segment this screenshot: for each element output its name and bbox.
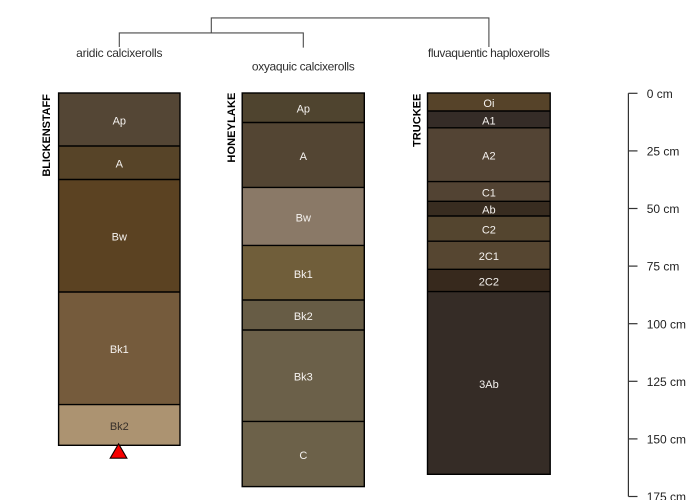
svg-text:Bk3: Bk3 xyxy=(294,372,313,384)
svg-text:C1: C1 xyxy=(482,187,496,199)
svg-text:Bk2: Bk2 xyxy=(294,311,313,323)
svg-text:Ab: Ab xyxy=(482,205,495,217)
svg-text:175 cm: 175 cm xyxy=(647,490,686,500)
svg-text:2C1: 2C1 xyxy=(479,251,499,263)
svg-text:Bk2: Bk2 xyxy=(110,421,129,433)
svg-text:aridic calcixerolls: aridic calcixerolls xyxy=(76,46,162,60)
svg-text:125 cm: 125 cm xyxy=(647,375,686,389)
svg-text:HONEYLAKE: HONEYLAKE xyxy=(226,93,238,163)
svg-text:75 cm: 75 cm xyxy=(647,260,680,274)
svg-text:fluvaquentic haploxerolls: fluvaquentic haploxerolls xyxy=(428,46,550,60)
svg-text:3Ab: 3Ab xyxy=(479,379,499,391)
svg-text:TRUCKEE: TRUCKEE xyxy=(411,94,423,147)
svg-text:2C2: 2C2 xyxy=(479,276,499,288)
svg-text:25 cm: 25 cm xyxy=(647,145,680,159)
svg-text:A: A xyxy=(116,159,124,171)
svg-text:Bw: Bw xyxy=(112,232,127,244)
svg-text:oxyaquic calcixerolls: oxyaquic calcixerolls xyxy=(252,59,355,73)
svg-text:A1: A1 xyxy=(482,115,495,127)
svg-text:Bk1: Bk1 xyxy=(110,344,129,356)
svg-text:50 cm: 50 cm xyxy=(647,202,680,216)
svg-text:Oi: Oi xyxy=(483,98,494,110)
svg-text:0 cm: 0 cm xyxy=(647,87,673,101)
svg-text:A2: A2 xyxy=(482,151,495,163)
svg-text:100 cm: 100 cm xyxy=(647,317,686,331)
svg-text:A: A xyxy=(300,151,308,163)
svg-text:Ap: Ap xyxy=(297,104,310,116)
svg-text:Ap: Ap xyxy=(113,115,126,127)
svg-text:Bw: Bw xyxy=(296,212,311,224)
svg-text:BLICKENSTAFF: BLICKENSTAFF xyxy=(41,94,53,177)
svg-text:Bk1: Bk1 xyxy=(294,269,313,281)
svg-text:C: C xyxy=(299,450,307,462)
svg-text:C2: C2 xyxy=(482,225,496,237)
svg-text:150 cm: 150 cm xyxy=(647,433,686,447)
